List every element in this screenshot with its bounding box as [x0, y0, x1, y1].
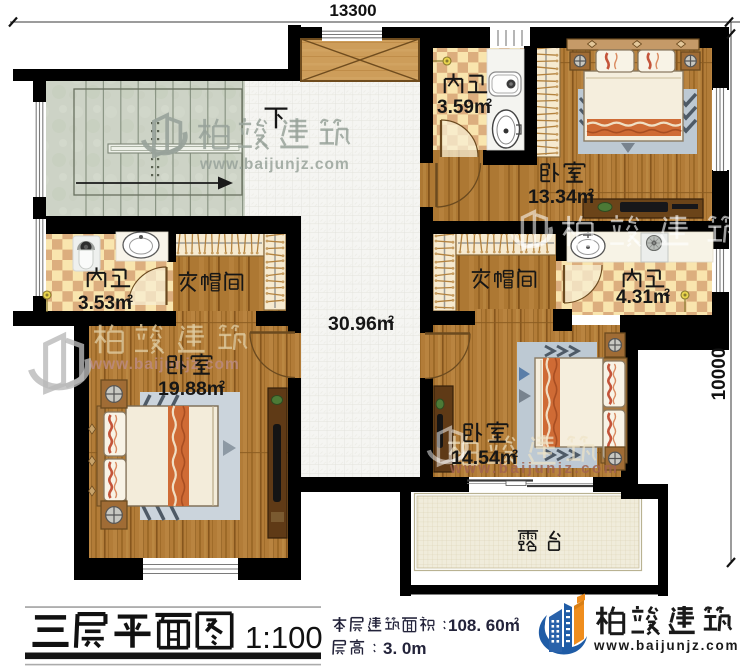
svg-text:1:100: 1:100: [245, 620, 323, 655]
svg-text:14.54m: 14.54m: [451, 447, 517, 469]
svg-text:www.baijunjz.com: www.baijunjz.com: [89, 356, 240, 373]
svg-text:2: 2: [664, 287, 670, 299]
svg-text:2: 2: [588, 187, 594, 199]
svg-text:2: 2: [486, 97, 492, 109]
svg-text:www.baijunjz.com: www.baijunjz.com: [199, 156, 350, 173]
svg-text:108. 60m: 108. 60m: [448, 616, 520, 635]
svg-text:3.59m: 3.59m: [437, 97, 491, 118]
svg-text:3. 0m: 3. 0m: [383, 639, 426, 658]
svg-text:10000: 10000: [709, 348, 730, 401]
svg-text:4.31m: 4.31m: [616, 287, 670, 308]
svg-text:2: 2: [219, 379, 225, 391]
svg-text:30.96m: 30.96m: [328, 313, 394, 335]
svg-text:19.88m: 19.88m: [158, 378, 224, 400]
svg-text:2: 2: [514, 616, 519, 626]
svg-text:2: 2: [512, 448, 518, 460]
svg-text:13300: 13300: [329, 1, 376, 20]
svg-text:2: 2: [388, 314, 394, 326]
svg-text:13.34m: 13.34m: [528, 186, 594, 208]
svg-text:2: 2: [127, 293, 133, 305]
svg-text:www.baijunjz.com: www.baijunjz.com: [593, 638, 739, 653]
svg-text:3.53m: 3.53m: [78, 293, 132, 314]
